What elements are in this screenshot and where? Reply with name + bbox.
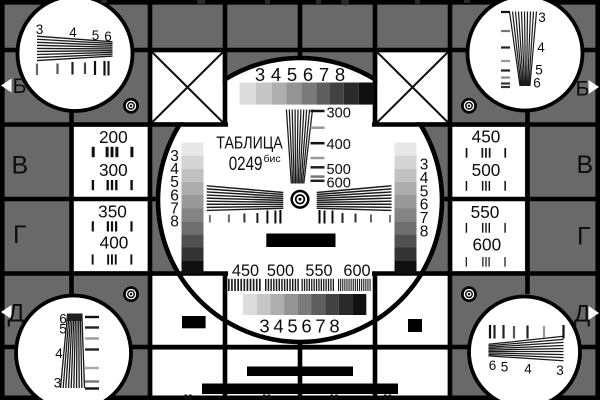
svg-text:5: 5 [92, 28, 100, 43]
svg-text:бис: бис [264, 153, 281, 165]
svg-text:400: 400 [100, 232, 129, 252]
svg-text:6: 6 [533, 76, 541, 91]
svg-text:4: 4 [69, 25, 77, 40]
svg-text:300: 300 [327, 106, 351, 122]
svg-text:6: 6 [301, 316, 311, 337]
svg-text:500: 500 [267, 262, 294, 280]
svg-text:450: 450 [232, 262, 259, 280]
svg-text:350: 350 [98, 201, 127, 221]
svg-text:7: 7 [315, 316, 325, 337]
svg-text:3: 3 [259, 316, 269, 337]
svg-text:400: 400 [327, 137, 351, 153]
svg-text:8: 8 [335, 64, 345, 85]
svg-text:В: В [12, 152, 29, 180]
svg-text:4: 4 [271, 64, 281, 85]
svg-text:6: 6 [104, 29, 112, 44]
svg-text:5: 5 [287, 316, 297, 337]
svg-text:600: 600 [327, 175, 351, 191]
svg-text:Г: Г [577, 223, 591, 251]
svg-text:300: 300 [99, 160, 128, 180]
svg-text:В: В [577, 151, 594, 179]
svg-text:550: 550 [471, 202, 500, 222]
svg-text:550: 550 [305, 262, 332, 280]
svg-text:ТАБЛИЦА: ТАБЛИЦА [216, 133, 283, 153]
svg-text:4: 4 [524, 362, 532, 377]
svg-text:8: 8 [329, 316, 339, 337]
svg-text:3: 3 [255, 64, 265, 85]
svg-text:3: 3 [538, 10, 546, 25]
svg-text:6: 6 [489, 358, 497, 373]
svg-text:3: 3 [36, 22, 44, 37]
svg-text:Д: Д [574, 301, 590, 328]
svg-text:4: 4 [55, 346, 63, 361]
svg-text:600: 600 [472, 235, 501, 255]
svg-text:6: 6 [303, 64, 313, 85]
svg-text:8: 8 [170, 214, 179, 231]
svg-text:0249: 0249 [229, 153, 263, 175]
svg-text:200: 200 [99, 127, 128, 147]
svg-text:3: 3 [556, 363, 564, 378]
svg-text:8: 8 [420, 224, 429, 241]
svg-text:Г: Г [13, 221, 27, 249]
svg-text:Б: Б [13, 74, 27, 98]
svg-text:500: 500 [472, 160, 501, 180]
svg-text:5: 5 [287, 64, 297, 85]
svg-text:450: 450 [472, 127, 501, 147]
svg-text:600: 600 [343, 262, 370, 280]
svg-text:4: 4 [273, 316, 283, 337]
svg-text:5: 5 [501, 360, 509, 375]
svg-text:Д: Д [8, 300, 25, 328]
svg-text:3: 3 [54, 376, 62, 391]
svg-text:4: 4 [537, 40, 545, 55]
svg-text:Б: Б [576, 77, 590, 101]
svg-text:5: 5 [59, 322, 67, 337]
svg-text:7: 7 [319, 64, 329, 85]
